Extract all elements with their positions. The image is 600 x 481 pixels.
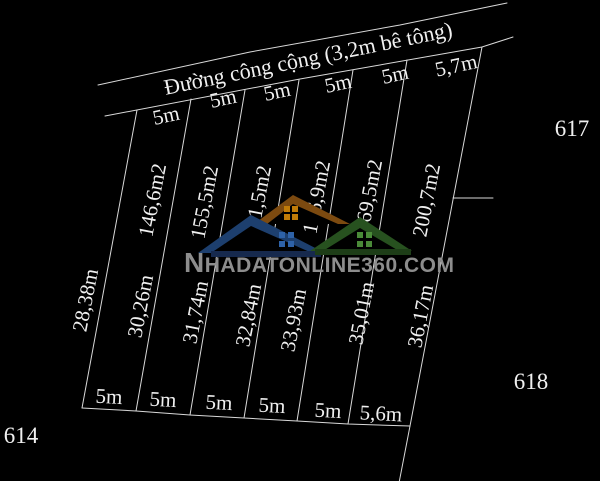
area-label-2: 155,5m2 (185, 163, 223, 240)
area-label-4: 166,9m2 (297, 158, 335, 235)
parcel-number-618: 618 (514, 369, 549, 394)
road-label: Đường công cộng (3,2m bê tông) (162, 17, 455, 100)
cadastral-drawing: Đường công cộng (3,2m bê tông) 5m 5m 5m … (0, 0, 600, 481)
side-length-label-7: 36,17m (402, 283, 438, 350)
side-length-label-6: 35,01m (343, 280, 379, 347)
watermark-initial: N (184, 247, 205, 278)
land-plot-diagram: Đường công cộng (3,2m bê tông) 5m 5m 5m … (0, 0, 600, 481)
bottom-width-label-2: 5m (149, 387, 177, 412)
plot-boundary-line-2 (136, 99, 191, 411)
parcel-number-617: 617 (555, 116, 590, 141)
plot-boundary-line-1 (82, 110, 137, 408)
top-width-label-2: 5m (207, 84, 238, 113)
top-width-label-1: 5m (150, 101, 181, 130)
area-label-6: 200,7m2 (407, 161, 445, 238)
bottom-width-label-4: 5m (258, 393, 286, 418)
top-width-label-3: 5m (261, 77, 292, 106)
parcel-number-614: 614 (4, 423, 39, 448)
bottom-width-label-6: 5,6m (359, 400, 403, 426)
bottom-width-label-5: 5m (314, 398, 342, 423)
area-label-1: 146,6m2 (133, 161, 171, 238)
bottom-width-label-3: 5m (205, 390, 233, 415)
boundary-extension-line (399, 426, 410, 481)
side-length-label-2: 30,26m (122, 273, 158, 340)
bottom-width-label-1: 5m (95, 384, 123, 409)
side-length-label-5: 33,93m (275, 287, 311, 354)
top-width-label-5: 5m (379, 60, 410, 89)
watermark-rest: HADATONLINE360.COM (205, 254, 455, 277)
